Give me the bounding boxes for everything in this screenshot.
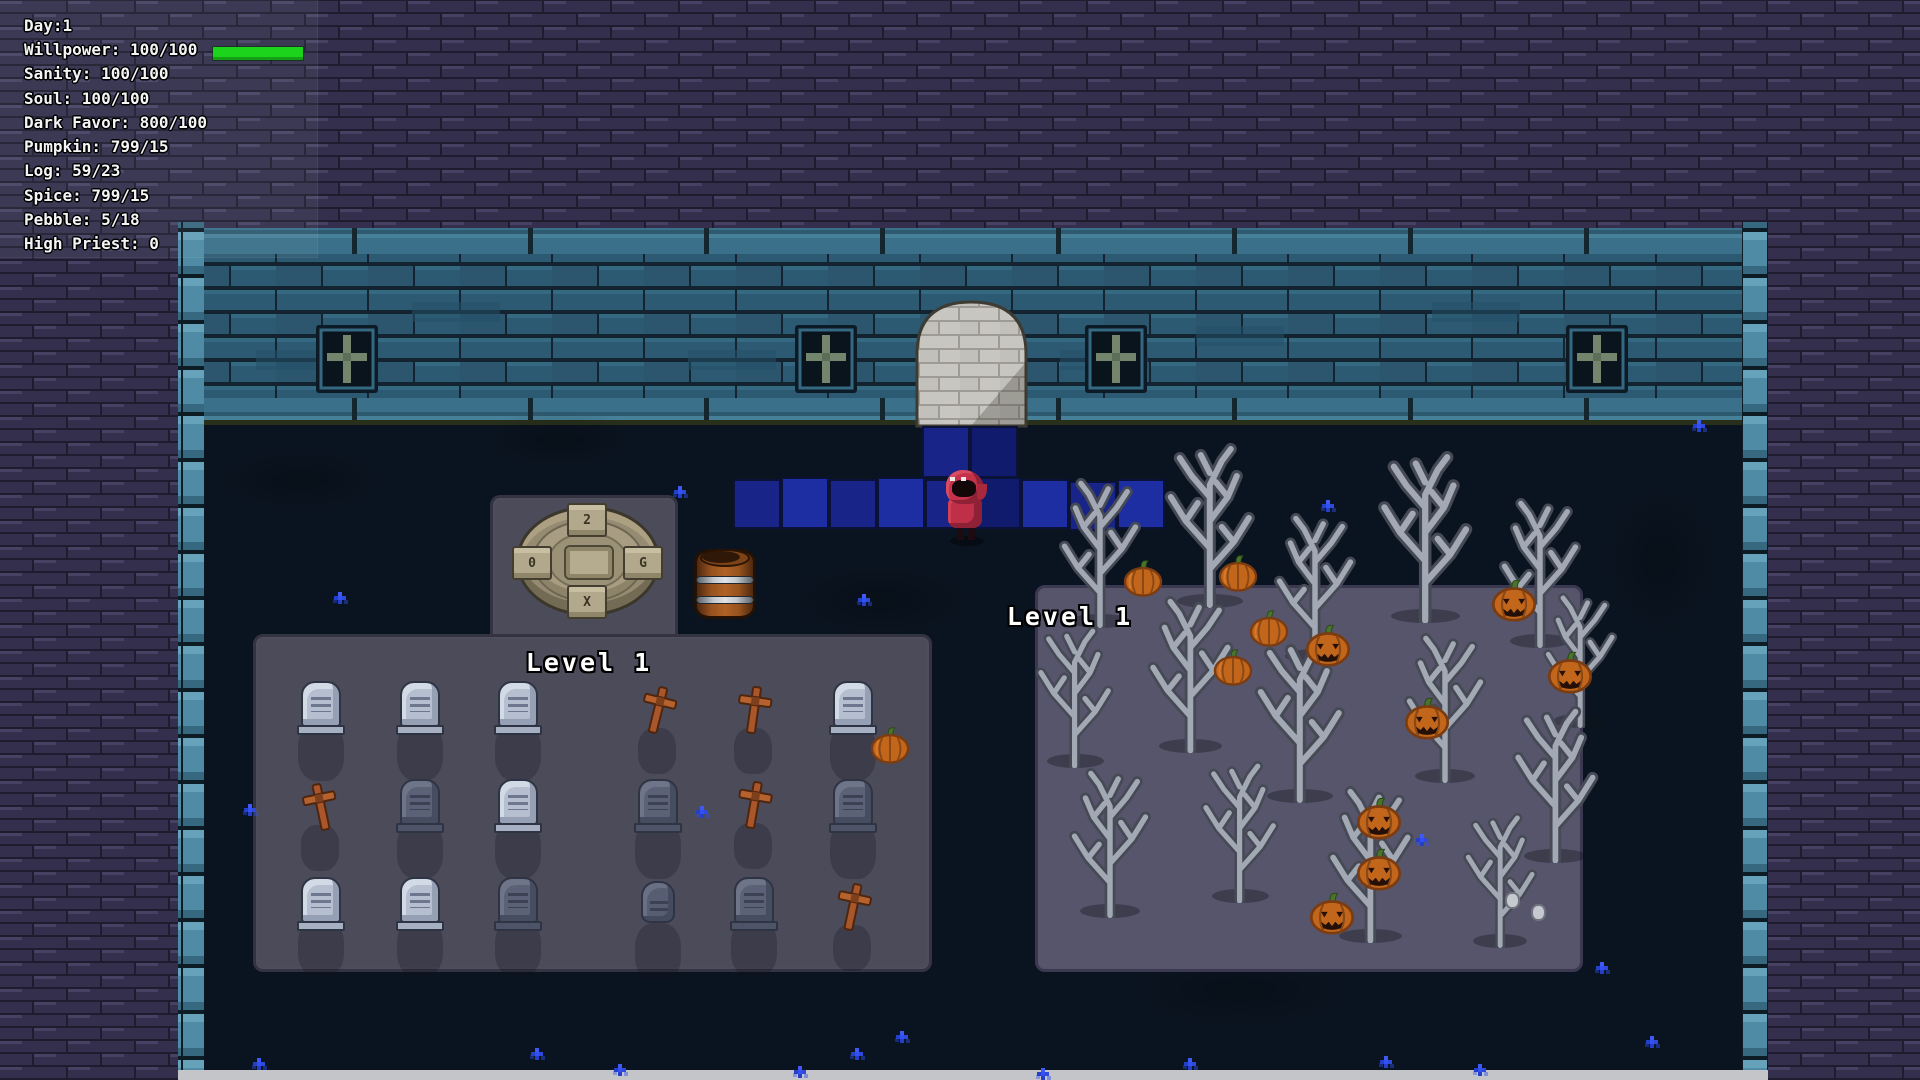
pumpkin[interactable] — [1248, 609, 1290, 647]
tombstone-base — [494, 921, 542, 931]
tombstone[interactable] — [641, 881, 685, 937]
tombstone-epitaph-lines — [311, 893, 331, 908]
jack-o-lantern[interactable] — [1355, 796, 1403, 840]
tombstone-epitaph-lines — [508, 795, 528, 810]
tombstone-face — [301, 681, 341, 727]
blue-flower — [248, 808, 252, 812]
blue-flower — [1650, 1040, 1654, 1044]
tombstone-epitaph-lines — [650, 901, 668, 912]
hud-stat-day: Day:1 — [24, 16, 72, 36]
grave-cross[interactable] — [733, 684, 775, 737]
tombstone-face — [400, 877, 440, 923]
hud-stat-log: Log: 59/23 — [24, 161, 120, 181]
ground-shade-patch — [210, 445, 390, 515]
tombstone[interactable] — [400, 681, 444, 737]
path-tile — [829, 479, 877, 529]
hud-stat-soul: Soul: 100/100 — [24, 89, 149, 109]
tombstone-epitaph-lines — [410, 795, 430, 810]
tombstone-base — [829, 823, 877, 833]
cross-vertical-beam — [745, 780, 763, 829]
blue-flower — [1326, 504, 1330, 508]
character-leg — [957, 526, 964, 540]
tombstone-face — [498, 681, 538, 727]
character-eye — [961, 477, 966, 481]
pumpkin[interactable] — [1122, 559, 1164, 597]
dead-tree[interactable] — [1370, 451, 1480, 624]
altar-pedestal-east[interactable]: G — [623, 546, 663, 580]
tombstone[interactable] — [301, 877, 345, 933]
altar-pedestal-south[interactable]: X — [567, 585, 607, 619]
blue-flower — [338, 596, 342, 600]
altar-rune: X — [583, 595, 591, 610]
blue-flower — [1420, 838, 1424, 842]
barrel[interactable] — [694, 549, 756, 619]
character-leg — [968, 526, 975, 540]
hud-stat-pebble: Pebble: 5/18 — [24, 210, 140, 230]
altar-pedestal-north[interactable]: 2 — [567, 503, 607, 537]
tombstone[interactable] — [498, 779, 542, 835]
tombstone-face — [833, 681, 873, 727]
tombstone-base — [730, 921, 778, 931]
cross-knot — [850, 893, 859, 902]
dead-tree[interactable] — [1029, 626, 1120, 769]
jack-o-lantern[interactable] — [1304, 623, 1352, 667]
tombstone-face — [498, 877, 538, 923]
path-tile — [877, 477, 925, 529]
blue-flower — [1384, 1060, 1388, 1064]
tombstone-face — [400, 681, 440, 727]
tombstone-base — [494, 725, 542, 735]
jack-o-lantern[interactable] — [1546, 650, 1594, 694]
jack-o-lantern[interactable] — [1403, 696, 1451, 740]
jack-o-lantern[interactable] — [1355, 847, 1403, 891]
tombstone[interactable] — [833, 779, 877, 835]
character-hood-flap — [977, 484, 987, 500]
tombstone-base — [297, 921, 345, 931]
tombstone[interactable] — [638, 779, 682, 835]
willpower-bar — [213, 47, 303, 60]
blue-flower — [855, 1052, 859, 1056]
tombstone-epitaph-lines — [843, 697, 863, 712]
altar-center-slab[interactable] — [564, 545, 614, 580]
ground-shade-patch — [780, 560, 980, 640]
character-face — [952, 480, 976, 497]
pumpkin[interactable] — [1217, 554, 1259, 592]
cross-knot — [314, 793, 323, 802]
tombstone-epitaph-lines — [508, 697, 528, 712]
pumpkin[interactable] — [1212, 648, 1254, 686]
hud-stat-high-priest: High Priest: 0 — [24, 234, 159, 254]
barrel-band — [696, 576, 754, 584]
blue-flower — [1041, 1072, 1045, 1076]
tombstone-face — [498, 779, 538, 825]
hud-stat-spice: Spice: 799/15 — [24, 186, 149, 206]
blue-flower — [900, 1035, 904, 1039]
game-viewport: 2 0 G X — [0, 0, 1920, 1080]
jack-o-lantern[interactable] — [1490, 578, 1538, 622]
cross-vertical-beam — [311, 782, 331, 831]
blue-flower — [1188, 1062, 1192, 1066]
small-stone — [1531, 904, 1546, 921]
character-eye — [950, 477, 955, 481]
small-stone — [1505, 892, 1520, 909]
graveyard-level-label: Level 1 — [509, 648, 669, 677]
dead-tree[interactable] — [1062, 768, 1158, 918]
tombstone-face — [641, 881, 675, 923]
blue-flower — [1697, 424, 1701, 428]
tombstone-base — [396, 823, 444, 833]
graveyard-plot — [253, 634, 932, 972]
tombstone-base — [634, 823, 682, 833]
blue-flower — [1600, 966, 1604, 970]
tombstone-epitaph-lines — [410, 697, 430, 712]
blue-flower — [535, 1052, 539, 1056]
blue-flower — [862, 598, 866, 602]
barrel-opening — [702, 551, 740, 563]
tombstone-epitaph-lines — [744, 893, 764, 908]
hud-stat-pumpkin: Pumpkin: 799/15 — [24, 137, 169, 157]
jack-o-lantern[interactable] — [1308, 891, 1356, 935]
altar-rune: G — [639, 556, 647, 571]
blue-flower — [700, 810, 704, 814]
player-character[interactable] — [946, 470, 988, 546]
path-tile — [781, 477, 829, 529]
tombstone-epitaph-lines — [410, 893, 430, 908]
path-tile — [733, 479, 781, 529]
tombstone[interactable] — [734, 877, 778, 933]
tombstone[interactable] — [498, 681, 542, 737]
tombstone-base — [297, 725, 345, 735]
cross-knot — [751, 697, 760, 706]
altar-rune: 0 — [528, 556, 536, 571]
tombstone-face — [301, 877, 341, 923]
blue-flower — [798, 1070, 802, 1074]
tombstone-face — [833, 779, 873, 825]
blue-flower — [1478, 1068, 1482, 1072]
tombstone-face — [638, 779, 678, 825]
pumpkin[interactable] — [869, 726, 911, 764]
blue-flower — [618, 1068, 622, 1072]
tombstone-epitaph-lines — [843, 795, 863, 810]
ritual-altar[interactable]: 2 0 G X — [510, 498, 666, 624]
dead-tree[interactable] — [1194, 761, 1285, 904]
cross-vertical-beam — [843, 882, 863, 931]
pumpkin-patch-level-label: Level 1 — [990, 602, 1150, 631]
dead-tree[interactable] — [1457, 813, 1543, 948]
grave-shadow — [301, 825, 339, 871]
tombstone-epitaph-lines — [648, 795, 668, 810]
tombstone-base — [396, 921, 444, 931]
blue-flower — [257, 1062, 261, 1066]
tombstone-base — [396, 725, 444, 735]
tombstone[interactable] — [400, 877, 444, 933]
tombstone-epitaph-lines — [508, 893, 528, 908]
tombstone[interactable] — [301, 681, 345, 737]
character-shadow — [950, 536, 984, 546]
barrel-top — [700, 549, 750, 567]
barrel-band — [696, 596, 754, 604]
cross-vertical-beam — [746, 686, 763, 735]
ground-shade-patch — [480, 410, 640, 470]
hud-stat-sanity: Sanity: 100/100 — [24, 64, 169, 84]
tombstone[interactable] — [498, 877, 542, 933]
hud-stat-willpower: Willpower: 100/100 — [24, 40, 197, 60]
tombstone-epitaph-lines — [311, 697, 331, 712]
cross-knot — [751, 792, 760, 801]
altar-pedestal-west[interactable]: 0 — [512, 546, 552, 580]
altar-rune: 2 — [583, 513, 591, 528]
tombstone[interactable] — [400, 779, 444, 835]
hud-stat-dark-favor: Dark Favor: 800/100 — [24, 113, 207, 133]
tombstone-face — [400, 779, 440, 825]
tombstone-face — [734, 877, 774, 923]
blue-flower — [678, 490, 682, 494]
tombstone-base — [494, 823, 542, 833]
